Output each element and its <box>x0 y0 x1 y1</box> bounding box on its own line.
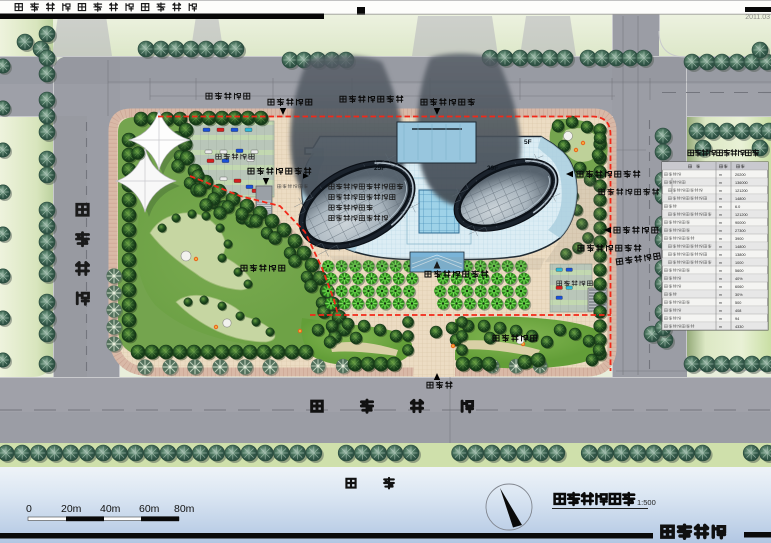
svg-text:m: m <box>719 221 722 225</box>
svg-text:m: m <box>719 309 722 313</box>
svg-text:m: m <box>719 229 722 233</box>
svg-text:20200: 20200 <box>735 173 746 177</box>
svg-text:2011.03: 2011.03 <box>745 14 770 21</box>
svg-text:m: m <box>719 189 722 193</box>
svg-text:408: 408 <box>735 309 741 313</box>
svg-text:121200: 121200 <box>735 189 748 193</box>
svg-text:27300: 27300 <box>735 229 746 233</box>
svg-text:m: m <box>719 205 722 209</box>
svg-text:3900: 3900 <box>735 237 743 241</box>
svg-text:m: m <box>719 197 722 201</box>
svg-text:14800: 14800 <box>735 245 746 249</box>
svg-text:0: 0 <box>26 503 32 515</box>
svg-text:m: m <box>719 317 722 321</box>
svg-text:40m: 40m <box>100 503 121 515</box>
svg-text:m: m <box>719 245 722 249</box>
svg-text:m: m <box>719 301 722 305</box>
svg-text:13800: 13800 <box>735 253 746 257</box>
svg-text:m: m <box>719 285 722 289</box>
svg-text:29F: 29F <box>487 165 498 172</box>
svg-text:1000: 1000 <box>735 261 743 265</box>
svg-text:14800: 14800 <box>735 197 746 201</box>
svg-text:6060: 6060 <box>735 285 743 289</box>
svg-text:500: 500 <box>735 301 741 305</box>
svg-text:m: m <box>719 293 722 297</box>
svg-text:m: m <box>719 173 722 177</box>
svg-text:m: m <box>719 269 722 273</box>
svg-text:4330: 4330 <box>735 325 743 329</box>
svg-text:m: m <box>719 277 722 281</box>
svg-text:m: m <box>719 261 722 265</box>
svg-text:60m: 60m <box>139 503 160 515</box>
svg-text:94: 94 <box>735 317 739 321</box>
svg-text:25F: 25F <box>374 165 385 172</box>
svg-text:m: m <box>719 213 722 217</box>
svg-text:90000: 90000 <box>735 221 746 225</box>
svg-text:20m: 20m <box>61 503 82 515</box>
svg-text:m: m <box>719 325 722 329</box>
svg-text:40%: 40% <box>735 277 743 281</box>
svg-text:5600: 5600 <box>735 269 743 273</box>
svg-text:m: m <box>719 181 722 185</box>
svg-text:5F: 5F <box>524 139 532 146</box>
svg-text:121200: 121200 <box>735 213 748 217</box>
svg-text:30%: 30% <box>735 293 743 297</box>
svg-text:1:500: 1:500 <box>637 498 656 507</box>
svg-text:m: m <box>719 237 722 241</box>
svg-text:136000: 136000 <box>735 181 748 185</box>
svg-text:m: m <box>719 253 722 257</box>
svg-text:6.0: 6.0 <box>735 205 740 209</box>
svg-text:80m: 80m <box>174 503 195 515</box>
